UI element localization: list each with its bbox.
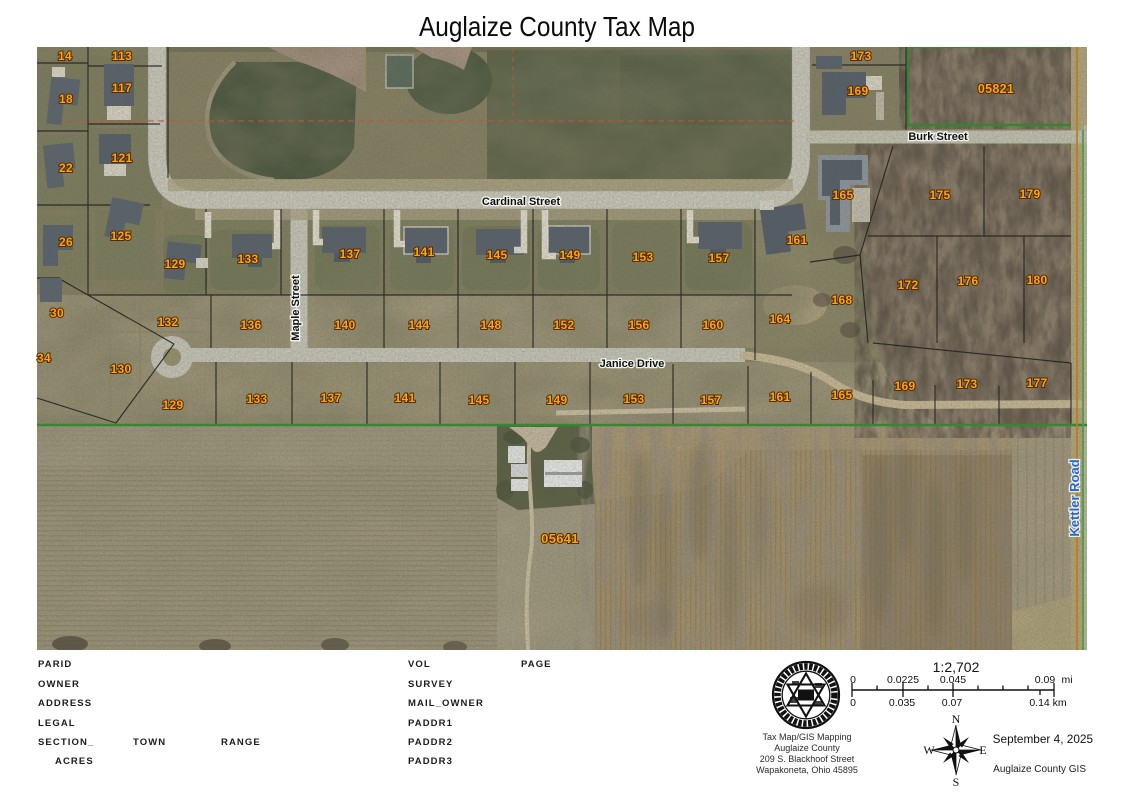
svg-text:169: 169 xyxy=(848,84,869,98)
svg-text:129: 129 xyxy=(165,257,186,271)
svg-text:TOWN: TOWN xyxy=(133,737,166,748)
svg-text:148: 148 xyxy=(481,318,502,332)
svg-text:0.14 km: 0.14 km xyxy=(1029,697,1067,709)
svg-text:173: 173 xyxy=(957,377,978,391)
svg-text:0.0225: 0.0225 xyxy=(887,674,919,686)
svg-text:34: 34 xyxy=(37,351,51,365)
svg-text:164: 164 xyxy=(770,312,791,326)
svg-text:157: 157 xyxy=(701,393,722,407)
svg-text:SURVEY: SURVEY xyxy=(408,679,454,690)
svg-text:130: 130 xyxy=(111,362,132,376)
svg-text:153: 153 xyxy=(624,392,645,406)
svg-text:mi: mi xyxy=(1061,674,1072,686)
svg-text:PARID: PARID xyxy=(38,659,72,670)
svg-text:Auglaize County: Auglaize County xyxy=(774,743,840,753)
svg-text:125: 125 xyxy=(111,229,132,243)
svg-text:179: 179 xyxy=(1020,187,1041,201)
svg-text:137: 137 xyxy=(321,391,342,405)
svg-text:0.045: 0.045 xyxy=(940,674,966,686)
svg-text:MAIL_OWNER: MAIL_OWNER xyxy=(408,698,484,709)
svg-text:SECTION_: SECTION_ xyxy=(38,737,94,748)
svg-text:N: N xyxy=(952,712,961,726)
svg-text:149: 149 xyxy=(547,393,568,407)
svg-text:0: 0 xyxy=(850,697,856,709)
svg-text:133: 133 xyxy=(238,252,259,266)
svg-text:160: 160 xyxy=(703,318,724,332)
svg-text:14: 14 xyxy=(58,49,72,63)
svg-text:W: W xyxy=(923,743,935,757)
svg-text:149: 149 xyxy=(560,248,581,262)
svg-text:0.09: 0.09 xyxy=(1035,674,1056,686)
svg-text:Wapakoneta, Ohio 45895: Wapakoneta, Ohio 45895 xyxy=(756,765,858,775)
svg-text:141: 141 xyxy=(395,391,416,405)
svg-text:136: 136 xyxy=(241,318,262,332)
svg-text:165: 165 xyxy=(833,188,854,202)
svg-text:PAGE: PAGE xyxy=(521,659,552,670)
svg-text:E: E xyxy=(979,743,986,757)
svg-text:30: 30 xyxy=(50,306,64,320)
svg-text:0: 0 xyxy=(850,674,856,686)
svg-text:05641: 05641 xyxy=(541,531,579,546)
svg-text:OWNER: OWNER xyxy=(38,679,80,690)
svg-text:RANGE: RANGE xyxy=(221,737,261,748)
svg-text:168: 168 xyxy=(832,293,853,307)
svg-text:22: 22 xyxy=(59,161,73,175)
svg-text:0.035: 0.035 xyxy=(889,697,915,709)
svg-text:145: 145 xyxy=(469,393,490,407)
svg-text:133: 133 xyxy=(247,392,268,406)
svg-text:172: 172 xyxy=(898,278,919,292)
svg-text:156: 156 xyxy=(629,318,650,332)
svg-text:Cardinal Street: Cardinal Street xyxy=(482,196,561,208)
svg-text:Tax Map/GIS Mapping: Tax Map/GIS Mapping xyxy=(762,732,851,742)
svg-text:Kettler Road: Kettler Road xyxy=(1067,459,1082,536)
svg-text:153: 153 xyxy=(633,250,654,264)
svg-text:1:2,702: 1:2,702 xyxy=(933,659,980,675)
svg-text:141: 141 xyxy=(414,245,435,259)
svg-text:144: 144 xyxy=(409,318,430,332)
svg-text:161: 161 xyxy=(770,390,791,404)
svg-text:175: 175 xyxy=(930,188,951,202)
svg-text:05821: 05821 xyxy=(978,82,1014,96)
svg-text:176: 176 xyxy=(958,274,979,288)
svg-text:PADDR3: PADDR3 xyxy=(408,756,453,767)
svg-text:180: 180 xyxy=(1027,273,1048,287)
svg-text:177: 177 xyxy=(1027,376,1048,390)
svg-text:PADDR1: PADDR1 xyxy=(408,718,453,729)
svg-text:173: 173 xyxy=(851,49,872,63)
svg-text:113: 113 xyxy=(112,49,132,63)
svg-text:Auglaize County Tax Map: Auglaize County Tax Map xyxy=(419,11,695,42)
svg-text:165: 165 xyxy=(832,388,853,402)
svg-text:137: 137 xyxy=(340,247,361,261)
svg-text:Burk Street: Burk Street xyxy=(908,131,968,143)
svg-text:Janice Drive: Janice Drive xyxy=(600,358,665,370)
svg-text:PADDR2: PADDR2 xyxy=(408,737,453,748)
svg-text:140: 140 xyxy=(335,318,356,332)
svg-text:S: S xyxy=(953,775,960,789)
svg-text:September 4, 2025: September 4, 2025 xyxy=(993,732,1094,746)
svg-text:ADDRESS: ADDRESS xyxy=(38,698,92,709)
svg-text:132: 132 xyxy=(158,315,179,329)
svg-text:209 S. Blackhoof Street: 209 S. Blackhoof Street xyxy=(760,754,855,764)
svg-text:Auglaize County GIS: Auglaize County GIS xyxy=(993,764,1086,775)
svg-text:121: 121 xyxy=(112,151,133,165)
svg-text:117: 117 xyxy=(112,81,132,95)
svg-text:Maple Street: Maple Street xyxy=(290,275,302,341)
svg-text:145: 145 xyxy=(487,248,508,262)
svg-text:152: 152 xyxy=(554,318,575,332)
svg-text:LEGAL: LEGAL xyxy=(38,718,76,729)
svg-text:0.07: 0.07 xyxy=(942,697,963,709)
svg-text:129: 129 xyxy=(163,398,184,412)
svg-text:26: 26 xyxy=(59,235,73,249)
svg-text:18: 18 xyxy=(59,92,73,106)
svg-text:157: 157 xyxy=(709,251,730,265)
svg-text:VOL: VOL xyxy=(408,659,431,670)
svg-text:161: 161 xyxy=(787,233,808,247)
svg-text:ACRES: ACRES xyxy=(55,756,94,767)
svg-text:169: 169 xyxy=(895,379,916,393)
